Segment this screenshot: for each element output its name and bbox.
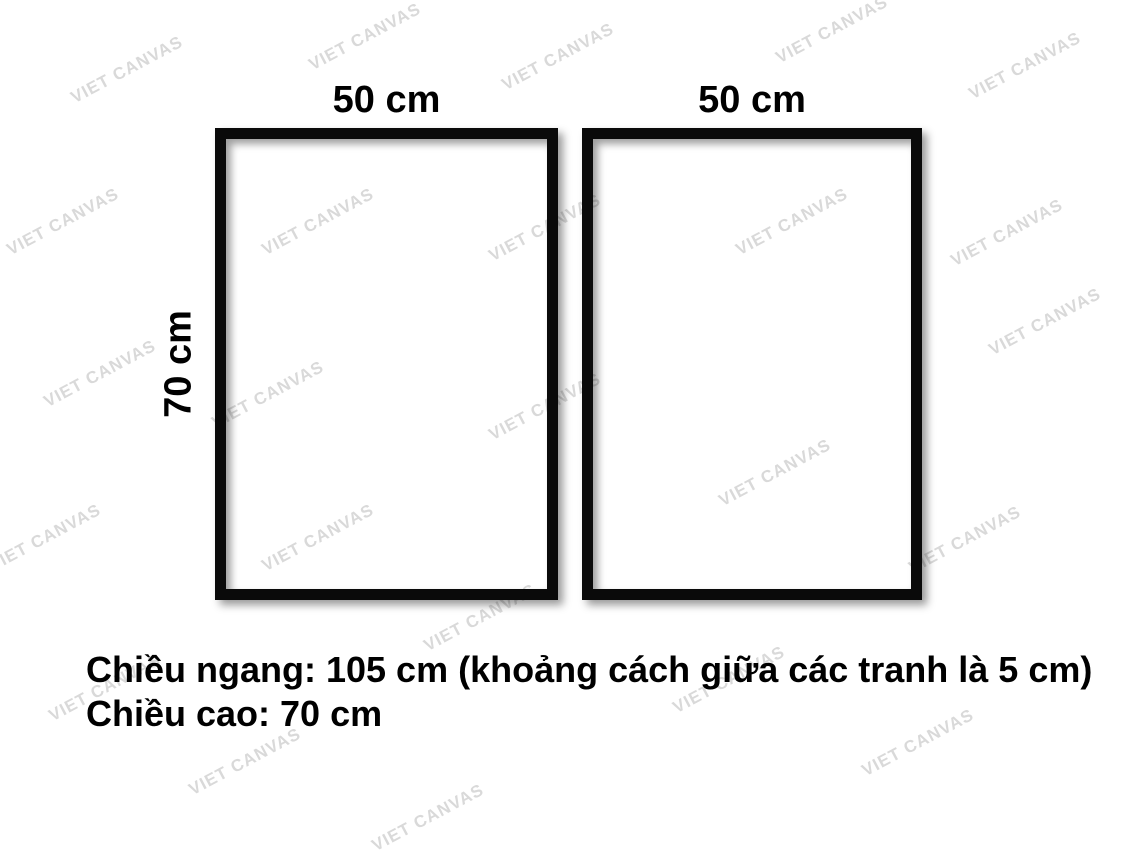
dimensions-note-line2: Chiều cao: 70 cm: [86, 692, 1092, 736]
watermark-text: VIET CANVAS: [966, 28, 1085, 104]
left-frame-height-label: 70 cm: [158, 310, 201, 418]
watermark-text: VIET CANVAS: [68, 32, 187, 108]
watermark-text: VIET CANVAS: [986, 284, 1105, 360]
watermark-text: VIET CANVAS: [0, 500, 104, 576]
dimensions-note: Chiều ngang: 105 cm (khoảng cách giữa cá…: [86, 648, 1092, 736]
left-frame-width-label: 50 cm: [215, 80, 558, 122]
left-frame: [215, 128, 558, 600]
watermark-text: VIET CANVAS: [4, 184, 123, 260]
watermark-text: VIET CANVAS: [906, 502, 1025, 578]
watermark-text: VIET CANVAS: [41, 336, 160, 412]
dimension-diagram: VIET CANVASVIET CANVASVIET CANVASVIET CA…: [0, 0, 1134, 850]
watermark-text: VIET CANVAS: [948, 195, 1067, 271]
watermark-text: VIET CANVAS: [369, 780, 488, 850]
watermark-text: VIET CANVAS: [773, 0, 892, 68]
watermark-text: VIET CANVAS: [306, 0, 425, 75]
right-frame: [582, 128, 922, 600]
dimensions-note-line1: Chiều ngang: 105 cm (khoảng cách giữa cá…: [86, 648, 1092, 692]
right-frame-width-label: 50 cm: [582, 80, 922, 122]
